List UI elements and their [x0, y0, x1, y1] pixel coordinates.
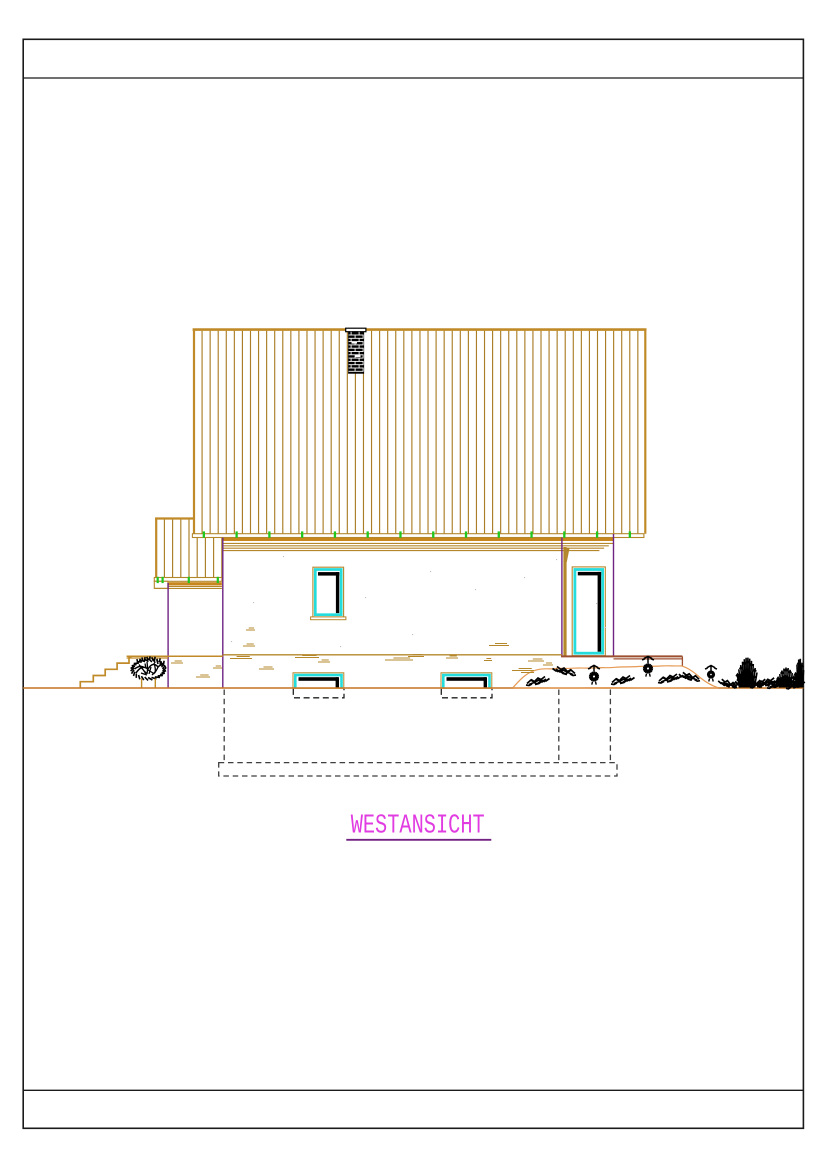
svg-text:WESTANSICHT: WESTANSICHT [351, 811, 485, 841]
